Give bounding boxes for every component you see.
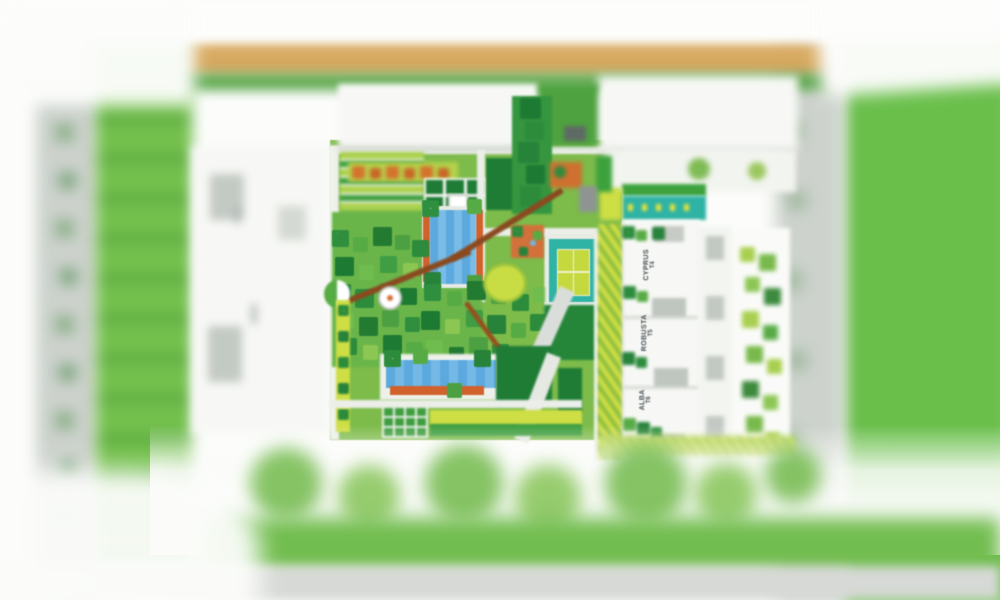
planter-cell bbox=[406, 408, 415, 416]
water-feature-hedge bbox=[622, 184, 706, 196]
east-building-corridor bbox=[624, 386, 700, 389]
garden-cell bbox=[426, 180, 443, 194]
kids-pool bbox=[386, 360, 496, 388]
tower-label-robusta: ROBUSTA T5 bbox=[641, 301, 655, 365]
gazebo-roof bbox=[387, 295, 393, 301]
top-right-wash bbox=[815, 0, 1000, 97]
east-building-planters bbox=[628, 232, 629, 233]
lime-edge-strip bbox=[336, 300, 350, 432]
bottom-green-band bbox=[205, 518, 1000, 573]
oval-lawn bbox=[483, 263, 527, 303]
west-building-label-smudge bbox=[236, 208, 239, 224]
east-tree-row bbox=[742, 244, 743, 245]
lime-corner bbox=[600, 188, 622, 220]
west-building-label-smudge bbox=[252, 304, 256, 324]
lime-strip-south bbox=[430, 410, 582, 425]
south-path bbox=[330, 400, 582, 408]
top-road bbox=[184, 40, 832, 76]
north-building-b bbox=[598, 76, 798, 155]
tower-label-cyprus: CYPRUS T4 bbox=[643, 233, 657, 297]
left-road-trees bbox=[64, 132, 65, 133]
west-building bbox=[192, 146, 332, 434]
east-wing-roof bbox=[706, 236, 724, 260]
tower-code: T4 bbox=[651, 233, 657, 297]
water-feature-deck-dashes bbox=[628, 204, 698, 211]
spa-plaza bbox=[511, 225, 544, 258]
bottom-tree-blob bbox=[765, 447, 821, 503]
east-building-corridor bbox=[624, 316, 700, 319]
east-building-roof bbox=[654, 368, 688, 388]
water-feature-pool bbox=[622, 196, 706, 220]
tower-name: ROBUSTA bbox=[641, 301, 648, 365]
east-building-roof bbox=[652, 298, 686, 318]
garden-cell bbox=[446, 180, 463, 194]
tennis-center-line bbox=[573, 250, 574, 295]
tower-name: ALBA bbox=[639, 368, 646, 432]
kids-pool-trees bbox=[392, 358, 393, 359]
site-plan-photo: CYPRUS T4 ROBUSTA T5 ALBA T6 bbox=[0, 0, 1000, 600]
entry-structure bbox=[564, 126, 586, 141]
east-wing-roof bbox=[706, 356, 724, 380]
central-garden-trees bbox=[336, 232, 337, 233]
north-building-a bbox=[338, 84, 538, 151]
main-pool-trees bbox=[430, 208, 431, 209]
kids-pool-orange-deck bbox=[390, 386, 484, 395]
gray-pavilion bbox=[579, 186, 597, 212]
east-wing-roof bbox=[706, 296, 724, 320]
hedge-column-trees bbox=[530, 108, 531, 109]
tower-label-alba: ALBA T6 bbox=[639, 368, 653, 432]
green-block-ne bbox=[596, 156, 612, 192]
tower-code: T6 bbox=[647, 368, 653, 432]
west-building-roof bbox=[278, 206, 306, 240]
top-left-wash bbox=[0, 0, 195, 105]
orange-planter-row bbox=[358, 172, 359, 173]
bottom-tree-blob bbox=[425, 445, 503, 523]
tower-name: CYPRUS bbox=[643, 233, 650, 297]
bottom-tree-blob bbox=[695, 463, 757, 525]
bottom-tree-blob bbox=[250, 448, 322, 520]
west-building-roof bbox=[208, 326, 242, 382]
planter-cell bbox=[395, 408, 404, 416]
planter-cell bbox=[417, 408, 426, 416]
orange-terrace-tree bbox=[554, 166, 566, 178]
spa-plaza-trees bbox=[517, 231, 518, 232]
northeast-tree bbox=[688, 158, 710, 180]
northeast-tree bbox=[748, 162, 766, 180]
bottom-tree-blob bbox=[605, 443, 687, 525]
lime-edge-trees bbox=[343, 310, 344, 311]
east-building-roof bbox=[654, 226, 684, 242]
spa-pool-dot bbox=[530, 240, 536, 246]
gazebo bbox=[378, 286, 402, 310]
planter-cell bbox=[384, 408, 393, 416]
tower-code: T5 bbox=[649, 301, 655, 365]
